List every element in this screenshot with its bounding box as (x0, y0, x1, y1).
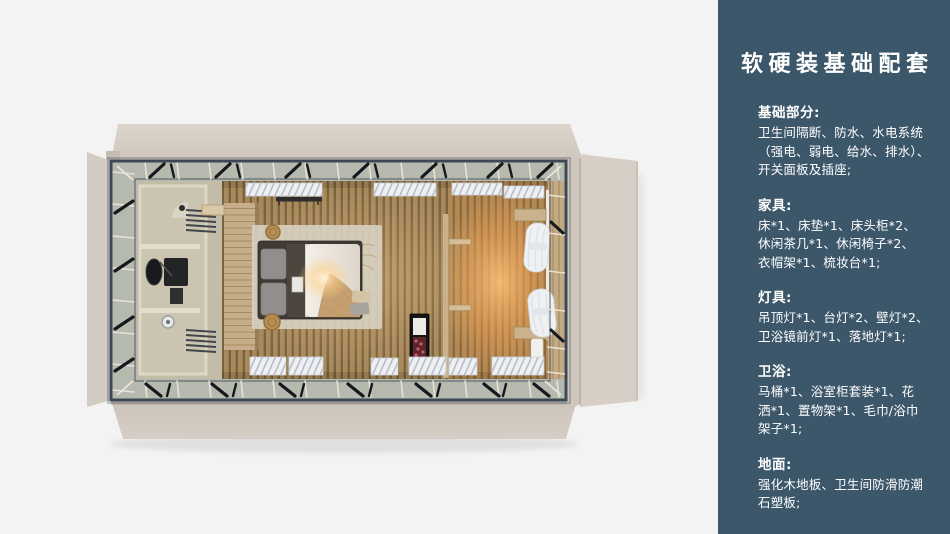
section-lighting-heading: 灯具: (758, 286, 924, 306)
section-basics-line-2: 开关面板及插座; (758, 161, 924, 180)
section-furniture-heading: 家具: (758, 194, 924, 214)
towel (531, 339, 543, 359)
bathroom-divider (140, 244, 200, 249)
section-sanitary-line-2: 架子*1; (758, 420, 924, 439)
section-furniture-line-1: 休闲茶几*1、休闲椅子*2、 (758, 235, 924, 254)
section-lighting-line-1: 卫浴镜前灯*1、落地灯*1; (758, 328, 924, 347)
double-bed (252, 225, 382, 330)
lamp-glow (298, 256, 350, 300)
section-sanitary: 卫浴: 马桶*1、浴室柜套装*1、花 洒*1、置物架*1、毛巾/浴巾 架子*1; (758, 360, 924, 439)
section-furniture-line-2: 衣帽架*1、梳妆台*1; (758, 254, 924, 273)
section-basics-heading: 基础部分: (758, 101, 924, 121)
section-sanitary-heading: 卫浴: (758, 360, 924, 380)
storage-basket (266, 225, 280, 239)
storage-basket (264, 314, 280, 330)
toilet (162, 316, 174, 328)
section-basics-line-0: 卫生间隔断、防水、水电系统 (758, 124, 924, 143)
pillow (261, 283, 286, 315)
bench (202, 205, 224, 215)
section-flooring-heading: 地面: (758, 453, 924, 473)
screenshot-root: 软硬装基础配套 基础部分: 卫生间隔断、防水、水电系统 （强电、弱电、给水、排水… (0, 0, 950, 534)
section-flooring-line-1: 石塑板; (758, 494, 924, 513)
section-flooring-line-0: 强化木地板、卫生间防滑防潮 (758, 476, 924, 495)
section-lighting: 灯具: 吊顶灯*1、台灯*2、壁灯*2、 卫浴镜前灯*1、落地灯*1; (758, 286, 924, 346)
section-basics-line-1: （强电、弱电、给水、排水）、 (758, 143, 924, 162)
bathroom-divider (140, 308, 200, 313)
section-furniture-line-0: 床*1、床垫*1、床头柜*2、 (758, 217, 924, 236)
pillow (261, 249, 286, 279)
section-sanitary-line-0: 马桶*1、浴室柜套装*1、花 (758, 383, 924, 402)
panel-title: 软硬装基础配套 (741, 46, 924, 78)
info-panel: 软硬装基础配套 基础部分: 卫生间隔断、防水、水电系统 （强电、弱电、给水、排水… (718, 0, 950, 534)
section-sanitary-line-1: 洒*1、置物架*1、毛巾/浴巾 (758, 402, 924, 421)
section-flooring: 地面: 强化木地板、卫生间防滑防潮 石塑板; (758, 453, 924, 513)
section-furniture: 家具: 床*1、床垫*1、床头柜*2、 休闲茶几*1、休闲椅子*2、 衣帽架*1… (758, 194, 924, 273)
floorplan-render (0, 0, 718, 534)
section-basics: 基础部分: 卫生间隔断、防水、水电系统 （强电、弱电、给水、排水）、 开关面板及… (758, 101, 924, 180)
section-lighting-line-0: 吊顶灯*1、台灯*2、壁灯*2、 (758, 309, 924, 328)
